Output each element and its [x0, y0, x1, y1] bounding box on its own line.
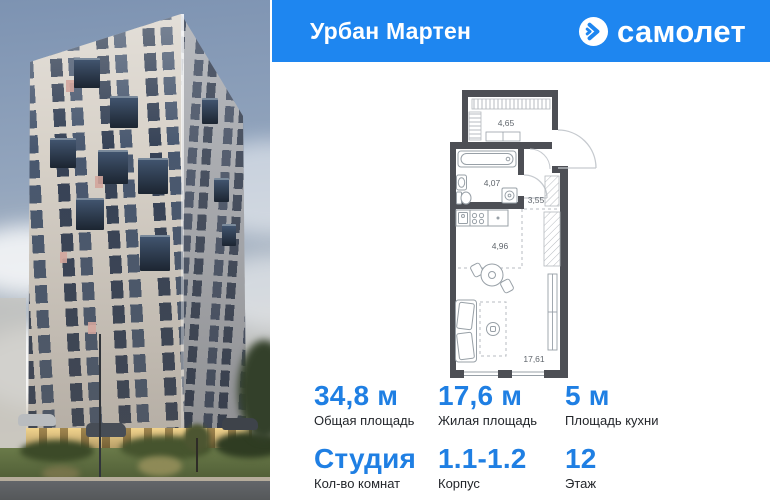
floor-lamp-icon	[487, 323, 500, 336]
room-area-corridor: 3,55	[528, 195, 545, 205]
header-bar: Урбан Мартен самолет	[272, 0, 770, 62]
sapling-trunk	[196, 438, 198, 472]
floor-plan: 4,65 4,07 3,55 4,96 17,61	[448, 88, 600, 382]
balcony	[140, 235, 170, 271]
room-area-bathroom: 4,07	[484, 178, 501, 188]
grass-tuft	[138, 456, 182, 476]
stat-value: 5 м	[565, 381, 770, 411]
stat-label: Жилая площадь	[438, 413, 565, 429]
info-panel: Урбан Мартен самолет	[272, 0, 770, 500]
stat-value: 17,6 м	[438, 381, 565, 411]
washing-machine-icon	[502, 188, 517, 203]
distant-building	[0, 298, 26, 454]
street-lamp-pole	[99, 334, 101, 480]
stat-value: 34,8 м	[314, 381, 438, 411]
balcony	[222, 224, 236, 246]
samolet-arrow-icon	[578, 16, 609, 47]
kitchen-counter-icon	[456, 210, 508, 226]
samolet-logo-text: самолет	[617, 16, 746, 47]
room-area-kitchen: 4,96	[492, 241, 509, 251]
tower-corner-edge	[181, 14, 184, 482]
car	[222, 418, 258, 430]
stat-rooms: Студия Кол-во комнат	[314, 444, 438, 492]
balcony	[138, 158, 168, 194]
stat-label: Корпус	[438, 476, 565, 492]
balcony	[214, 178, 229, 202]
balcony	[110, 96, 138, 128]
balcony	[202, 98, 218, 124]
listing-card[interactable]: Урбан Мартен самолет	[0, 0, 770, 500]
stat-floor: 12 Этаж	[565, 444, 770, 492]
balcony	[74, 58, 100, 88]
stat-value: Студия	[314, 444, 438, 474]
lit-window	[60, 252, 67, 263]
road	[0, 481, 270, 500]
samolet-logo: самолет	[578, 16, 746, 47]
stat-label: Площадь кухни	[565, 413, 770, 429]
bathtub-icon	[458, 151, 516, 167]
plan-wardrobes	[469, 99, 560, 266]
room-area-living-room: 17,61	[523, 354, 545, 364]
bush	[20, 440, 94, 462]
sofa-icon	[456, 300, 477, 362]
car	[86, 423, 126, 437]
building-photo	[0, 0, 270, 500]
stats-row-details: Студия Кол-во комнат 1.1-1.2 Корпус 12 Э…	[272, 444, 770, 492]
stat-label: Этаж	[565, 476, 770, 492]
stat-label: Кол-во комнат	[314, 476, 438, 492]
stat-total-area: 34,8 м Общая площадь	[314, 381, 438, 429]
stat-kitchen-area: 5 м Площадь кухни	[565, 381, 770, 429]
sink-icon	[457, 175, 467, 190]
balcony	[76, 198, 104, 230]
stat-value: 12	[565, 444, 770, 474]
toilet-icon	[457, 192, 472, 204]
room-area-hallway: 4,65	[498, 118, 515, 128]
dining-table-icon	[470, 262, 514, 293]
lit-window	[88, 322, 96, 334]
stat-living-area: 17,6 м Жилая площадь	[438, 381, 565, 429]
stat-building: 1.1-1.2 Корпус	[438, 444, 565, 492]
car	[18, 414, 56, 426]
stats-row-areas: 34,8 м Общая площадь 17,6 м Жилая площад…	[272, 381, 770, 429]
lit-window	[95, 176, 103, 188]
project-title: Урбан Мартен	[310, 18, 471, 45]
lit-window	[66, 80, 74, 92]
stat-value: 1.1-1.2	[438, 444, 565, 474]
stat-label: Общая площадь	[314, 413, 438, 429]
balcony	[50, 138, 76, 168]
